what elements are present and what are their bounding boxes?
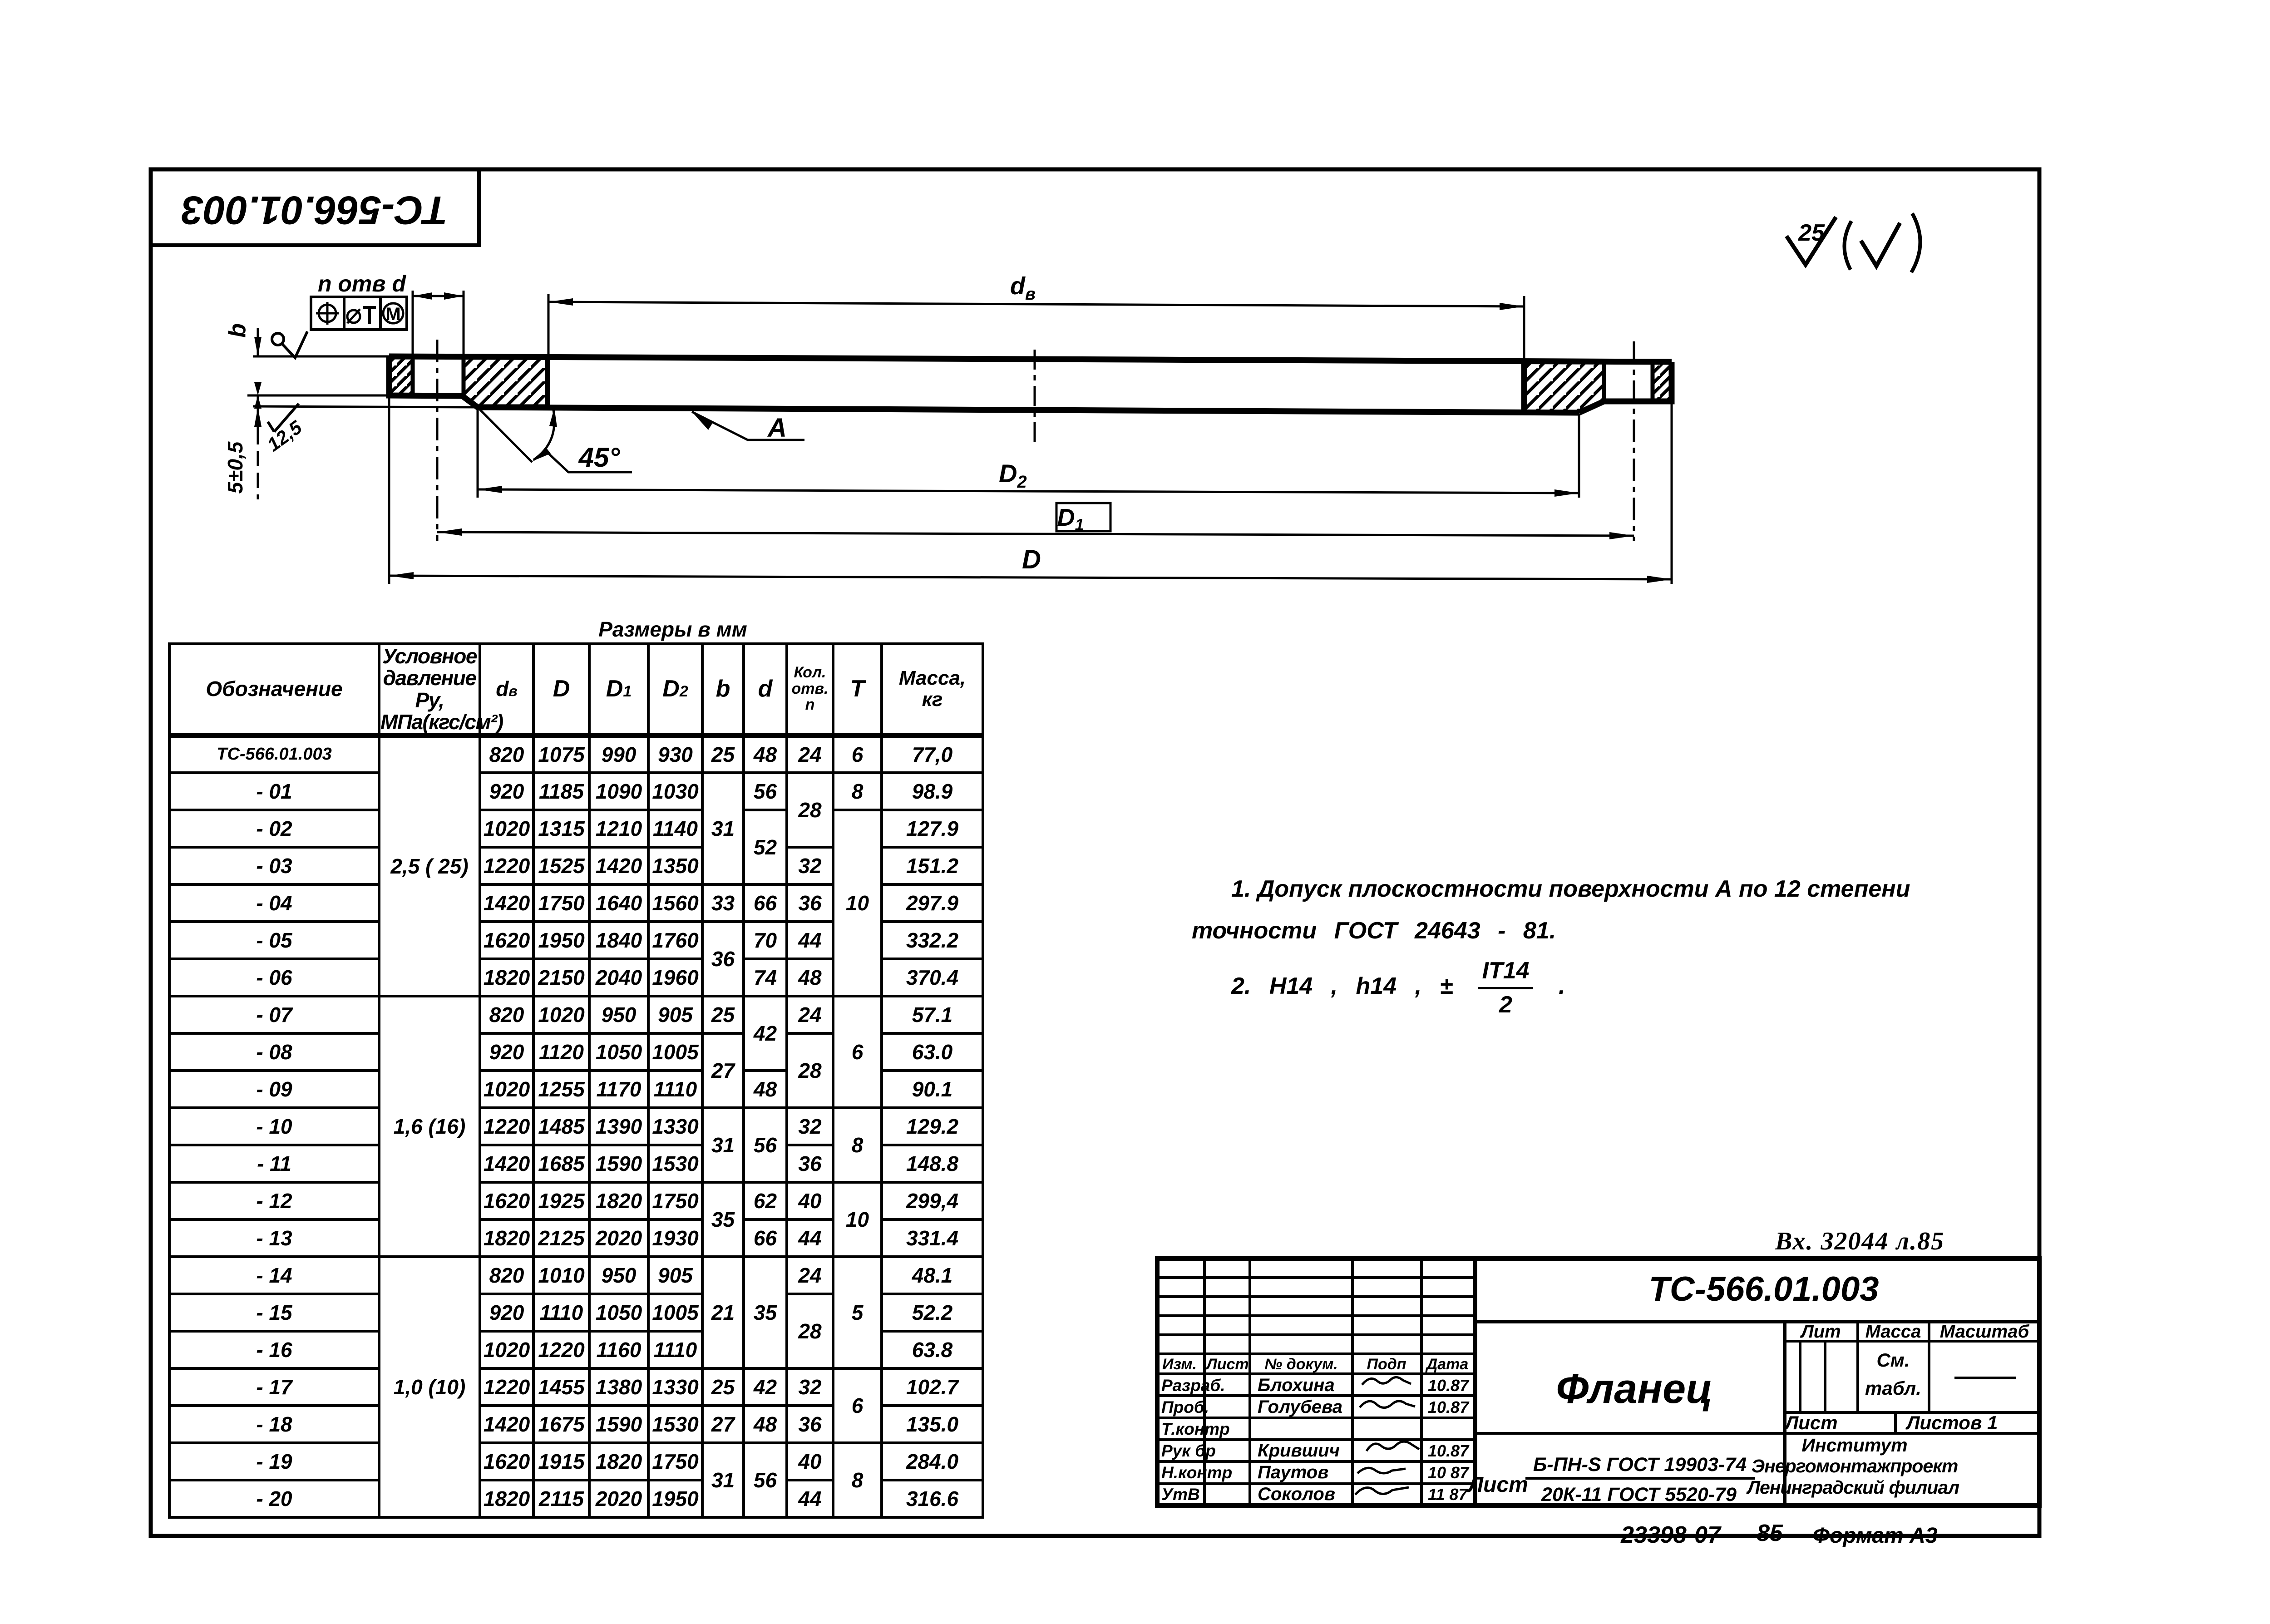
svg-text:Фланец: Фланец: [1556, 1366, 1712, 1412]
svg-text:Паутов: Паутов: [1258, 1462, 1328, 1482]
svg-text:Лист: Лист: [1205, 1356, 1248, 1373]
svg-text:b: b: [224, 323, 251, 338]
svg-text:85: 85: [1757, 1520, 1783, 1546]
svg-text:Проб.: Проб.: [1161, 1398, 1209, 1417]
svg-text:Формат А3: Формат А3: [1812, 1524, 1937, 1548]
svg-text:10.87: 10.87: [1428, 1441, 1470, 1460]
svg-text:A: A: [767, 413, 787, 443]
svg-text:Листов 1: Листов 1: [1905, 1412, 1998, 1433]
svg-text:dв: dв: [1010, 272, 1036, 304]
svg-text:10 87: 10 87: [1428, 1463, 1470, 1482]
svg-text:Дата: Дата: [1425, 1356, 1469, 1373]
svg-text:Лист: Лист: [1467, 1473, 1528, 1497]
svg-text:Изм.: Изм.: [1162, 1356, 1197, 1373]
svg-text:УтВ: УтВ: [1161, 1485, 1200, 1504]
svg-text:Соколов: Соколов: [1258, 1484, 1335, 1504]
svg-text:5±0,5: 5±0,5: [223, 441, 247, 494]
svg-text:Голубева: Голубева: [1258, 1397, 1342, 1417]
svg-text:D: D: [1022, 545, 1041, 574]
svg-text:Б-ПН-S ГОСТ 19903-74: Б-ПН-S ГОСТ 19903-74: [1533, 1454, 1747, 1476]
svg-text:Крившич: Крившич: [1258, 1441, 1340, 1461]
svg-text:Подп: Подп: [1367, 1356, 1406, 1373]
svg-text:Лит: Лит: [1800, 1322, 1841, 1342]
svg-text:ТС-566.01.003: ТС-566.01.003: [181, 188, 448, 233]
svg-text:10.87: 10.87: [1428, 1398, 1470, 1417]
svg-text:20К-11 ГОСТ 5520-79: 20К-11 ГОСТ 5520-79: [1541, 1484, 1737, 1506]
svg-text:Разраб.: Разраб.: [1161, 1376, 1225, 1395]
svg-text:Лист: Лист: [1784, 1412, 1837, 1433]
svg-text:Размеры в мм: Размеры в мм: [598, 617, 747, 641]
svg-text:45°: 45°: [578, 442, 621, 473]
svg-text:табл.: табл.: [1865, 1377, 1921, 1399]
svg-text:Ленинградский филиал: Ленинградский филиал: [1746, 1477, 1959, 1498]
svg-text:Рук бр: Рук бр: [1161, 1441, 1216, 1460]
svg-text:Вх. 32044 л.85: Вх. 32044 л.85: [1775, 1227, 1944, 1255]
svg-text:23398-07: 23398-07: [1620, 1522, 1722, 1548]
svg-text:10.87: 10.87: [1428, 1376, 1470, 1395]
svg-text:Масштаб: Масштаб: [1940, 1322, 2030, 1342]
svg-text:11 87: 11 87: [1428, 1485, 1468, 1504]
svg-text:Т.контр: Т.контр: [1161, 1420, 1230, 1438]
svg-text:Масса: Масса: [1865, 1322, 1921, 1342]
svg-text:Н.контр: Н.контр: [1161, 1463, 1232, 1482]
svg-text:№ докум.: № докум.: [1264, 1356, 1337, 1373]
svg-text:Институт: Институт: [1801, 1435, 1907, 1456]
svg-text:D2: D2: [999, 459, 1027, 492]
svg-text:ТС-566.01.003: ТС-566.01.003: [1649, 1270, 1879, 1308]
svg-text:Энергомонтажпроект: Энергомонтажпроект: [1752, 1456, 1958, 1476]
svg-text:M: M: [385, 304, 400, 324]
svg-text:См.: См.: [1876, 1349, 1910, 1371]
svg-text:n отв d: n отв d: [318, 271, 407, 296]
svg-text:Блохина: Блохина: [1258, 1375, 1335, 1395]
